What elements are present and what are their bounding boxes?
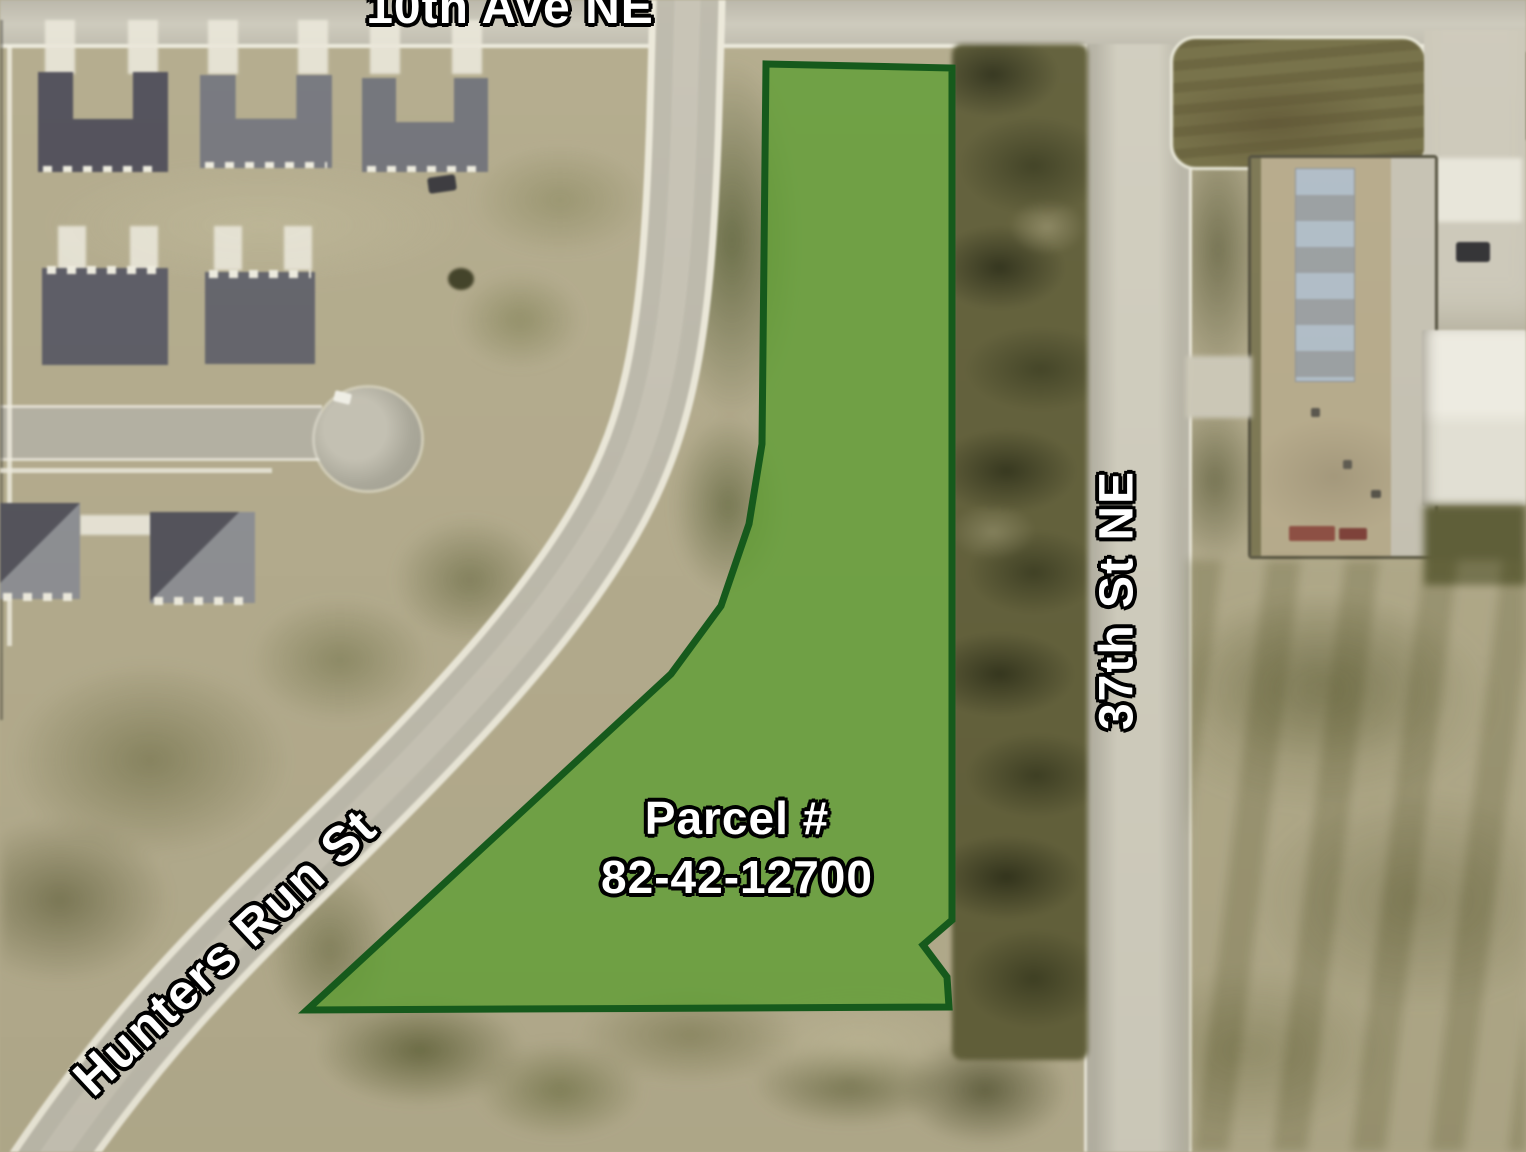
parcel-label-line2: 82-42-12700 [601, 848, 873, 907]
street-label-37th-st-ne: 37th St NE [1090, 470, 1145, 730]
parcel-label-line1: Parcel # [601, 789, 873, 848]
street-label-10th-ave-ne: 10th Ave NE [366, 0, 654, 35]
aerial-map: 10th Ave NE 37th St NE Hunters Run St Pa… [0, 0, 1526, 1152]
parcel-label: Parcel # 82-42-12700 [601, 789, 873, 907]
